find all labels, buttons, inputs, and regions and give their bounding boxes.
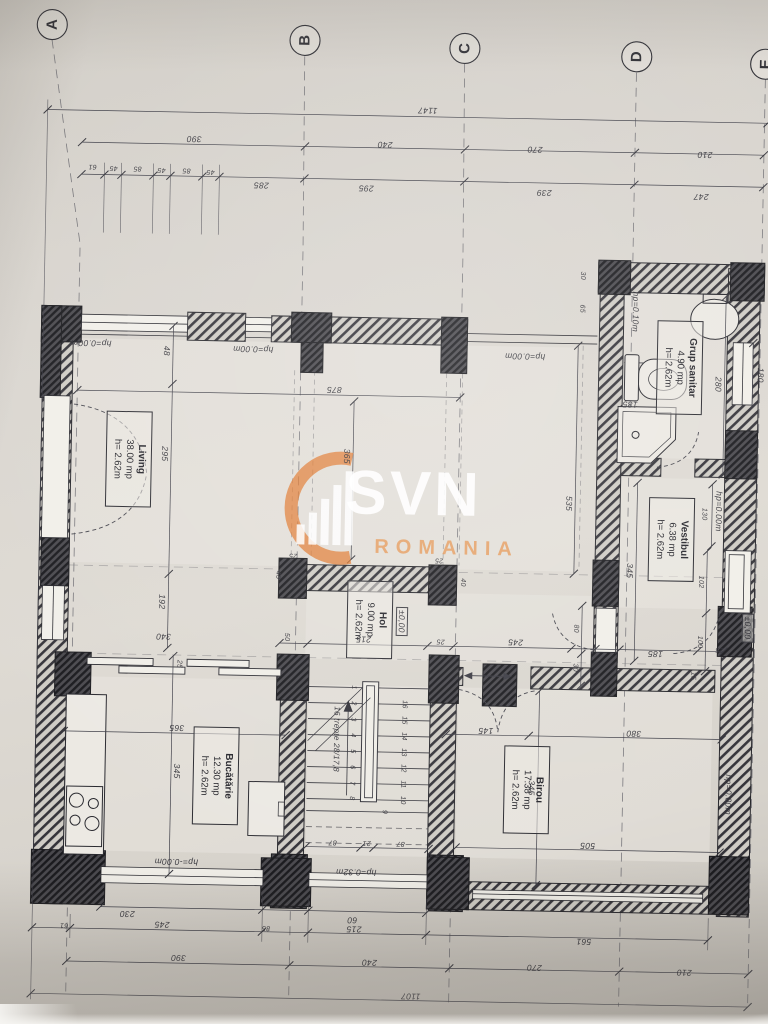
dim-label: 61 bbox=[88, 163, 97, 170]
parapet-height-label: hp=0.00m bbox=[723, 774, 734, 815]
parapet-height-label: hp=0.10m bbox=[631, 291, 642, 332]
dim-label: 1107 bbox=[401, 991, 421, 1001]
room-label-bucatarie: Bucătărie 12.30 mp h= 2.62m bbox=[192, 726, 240, 825]
dim-label: 15 bbox=[689, 672, 696, 681]
dim-label: 50 bbox=[283, 633, 290, 642]
kitchen-island bbox=[248, 781, 285, 836]
stair-step-number: 3 bbox=[349, 717, 356, 721]
parapet-height-label: hp=0.00m bbox=[714, 491, 725, 532]
room-height: h= 2.62m bbox=[652, 503, 666, 575]
dim-label: 25 bbox=[175, 660, 182, 669]
grid-column-e: E bbox=[757, 59, 768, 69]
parapet-height-label: hp=0.32m bbox=[336, 867, 377, 878]
dim-label: 65 bbox=[578, 305, 585, 314]
room-area: 12.30 mp bbox=[209, 733, 223, 819]
dim-label: 280 bbox=[713, 377, 723, 392]
dim-label: 230 bbox=[120, 909, 135, 919]
dim-label: 875 bbox=[327, 385, 342, 395]
stair-step-number: 6 bbox=[349, 765, 356, 769]
room-name: Living bbox=[134, 417, 149, 501]
dim-label: 240 bbox=[377, 140, 392, 150]
dim-label: 535 bbox=[564, 496, 574, 511]
stair-step-number: 16 bbox=[401, 700, 408, 709]
room-name: Bucătărie bbox=[221, 733, 236, 819]
level-label: ±0,00 bbox=[742, 614, 755, 643]
dim-label: 365 bbox=[169, 723, 184, 733]
dim-label: 340 bbox=[156, 632, 171, 642]
dim-label: 80 bbox=[572, 624, 579, 633]
dim-label: 345 bbox=[527, 780, 537, 795]
dim-label: 561 bbox=[576, 937, 591, 947]
grid-bubbles bbox=[37, 9, 768, 79]
room-label-vestibul: Vestibul 6.38 mp h= 2.62m bbox=[648, 497, 695, 582]
dim-label: 102 bbox=[697, 576, 704, 589]
stairs-note: 16 trepte 28/17,8 bbox=[332, 706, 342, 772]
dim-label: 185 bbox=[648, 649, 663, 659]
dim-label: 247 bbox=[693, 192, 708, 202]
dim-label: 25 bbox=[436, 638, 445, 645]
dim-label: 270 bbox=[527, 963, 542, 973]
dim-label: 85 bbox=[182, 167, 191, 174]
dim-label: 295 bbox=[160, 446, 170, 461]
dim-label: 40 bbox=[274, 571, 281, 580]
stair-step-number: 15 bbox=[400, 716, 407, 725]
room-label-hol: Hol 9.00 mp h= 2.62m bbox=[346, 580, 393, 659]
dim-label: 215 bbox=[356, 634, 371, 644]
dim-label: 145 bbox=[478, 726, 493, 736]
dim-label: 270 bbox=[527, 145, 542, 155]
dim-label: 61 bbox=[60, 921, 69, 928]
level-label: ±0,00 bbox=[396, 607, 409, 636]
dim-label: 210 bbox=[697, 150, 712, 160]
room-height: h= 2.62m bbox=[660, 326, 674, 408]
dim-label: 380 bbox=[626, 729, 641, 739]
parapet-height-label: hp=0.00m bbox=[505, 351, 546, 362]
dim-label: 30 bbox=[571, 663, 578, 672]
dim-label: 85 bbox=[262, 924, 271, 931]
sliding-door-panels bbox=[87, 657, 281, 676]
dim-label: 210 bbox=[677, 968, 692, 978]
dim-label: 30 bbox=[579, 272, 586, 281]
dim-label: 245 bbox=[508, 637, 523, 647]
dim-label: 45 bbox=[157, 166, 166, 173]
dim-label: 185 bbox=[622, 400, 637, 410]
stair-step-number: 13 bbox=[400, 748, 407, 757]
dim-label: 180 bbox=[756, 368, 766, 383]
blueprint-photo: SVN ROMANIA A B C D E Living 38.00 mp h=… bbox=[0, 0, 768, 1024]
room-name: Grup sanitar bbox=[685, 327, 700, 409]
parapet-height-label: hp=-0.00m bbox=[154, 857, 198, 868]
room-label-living: Living 38.00 mp h= 2.62m bbox=[105, 411, 153, 508]
dim-label: 239 bbox=[537, 188, 552, 198]
dim-label: 87 bbox=[328, 838, 337, 845]
dim-label: 295 bbox=[359, 183, 374, 193]
stair-step-number: 11 bbox=[399, 780, 406, 788]
dim-label: 390 bbox=[186, 134, 201, 144]
dim-label: 100 bbox=[696, 636, 703, 649]
grid-column-d: D bbox=[628, 51, 645, 62]
room-name: Hol bbox=[375, 587, 389, 653]
dim-label: 25 bbox=[715, 646, 724, 653]
dim-label: 85 bbox=[133, 165, 142, 172]
parapet-height-label: hp=0.00m bbox=[71, 338, 112, 349]
grid-column-a: A bbox=[44, 19, 61, 30]
dim-label: 215 bbox=[346, 924, 361, 934]
stair-step-number: 9 bbox=[381, 810, 388, 814]
dim-label: 240 bbox=[362, 958, 377, 968]
stair-step-number: 4 bbox=[349, 733, 356, 737]
room-name: Vestibul bbox=[677, 504, 691, 576]
stair-step-number: 5 bbox=[349, 749, 356, 753]
dim-label: 25 bbox=[435, 556, 444, 563]
grid-column-c: C bbox=[456, 43, 473, 54]
parapet-height-label: hp=0.00m bbox=[233, 344, 274, 355]
stair-step-number: 2 bbox=[350, 701, 357, 705]
room-height: h= 2.62m bbox=[109, 417, 123, 501]
floor-plan-sheet: SVN ROMANIA A B C D E Living 38.00 mp h=… bbox=[0, 0, 768, 1024]
stair-step-number: 1 bbox=[350, 685, 357, 689]
dim-label: 192 bbox=[157, 594, 167, 609]
grid-column-b: B bbox=[296, 35, 313, 46]
dim-label: 130 bbox=[700, 508, 707, 521]
room-height: h= 2.62m bbox=[196, 732, 210, 818]
dim-label: 345 bbox=[172, 763, 182, 778]
dim-label: 505 bbox=[580, 841, 595, 851]
dim-label: 285 bbox=[254, 180, 269, 190]
dim-label: 345 bbox=[625, 563, 635, 578]
dim-label: 48 bbox=[162, 346, 172, 356]
dim-label: 25 bbox=[289, 552, 298, 559]
dim-label: 1147 bbox=[418, 106, 438, 116]
stair-step-number: 14 bbox=[400, 732, 407, 741]
dim-label: 21 bbox=[362, 839, 371, 846]
stair-step-number: 7 bbox=[348, 781, 355, 785]
stair-step-number: 8 bbox=[348, 796, 355, 800]
dim-label: 45 bbox=[109, 164, 118, 171]
stair-step-number: 12 bbox=[400, 764, 407, 773]
room-area: 6.38 mp bbox=[664, 503, 678, 575]
kitchen-counter bbox=[63, 694, 106, 855]
dim-label: 390 bbox=[171, 953, 186, 963]
dim-label: 87 bbox=[396, 840, 405, 847]
dim-label: 45 bbox=[206, 168, 215, 175]
dim-label: 40 bbox=[459, 578, 466, 587]
dim-label: 365 bbox=[342, 449, 352, 464]
room-height: h= 2.62m bbox=[507, 751, 521, 827]
room-label-grup-sanitar: Grup sanitar 4.90 mp h= 2.62m bbox=[656, 320, 703, 415]
stair-step-number: 10 bbox=[399, 796, 406, 805]
room-area: 38.00 mp bbox=[122, 417, 136, 501]
dim-label: 245 bbox=[154, 920, 169, 930]
